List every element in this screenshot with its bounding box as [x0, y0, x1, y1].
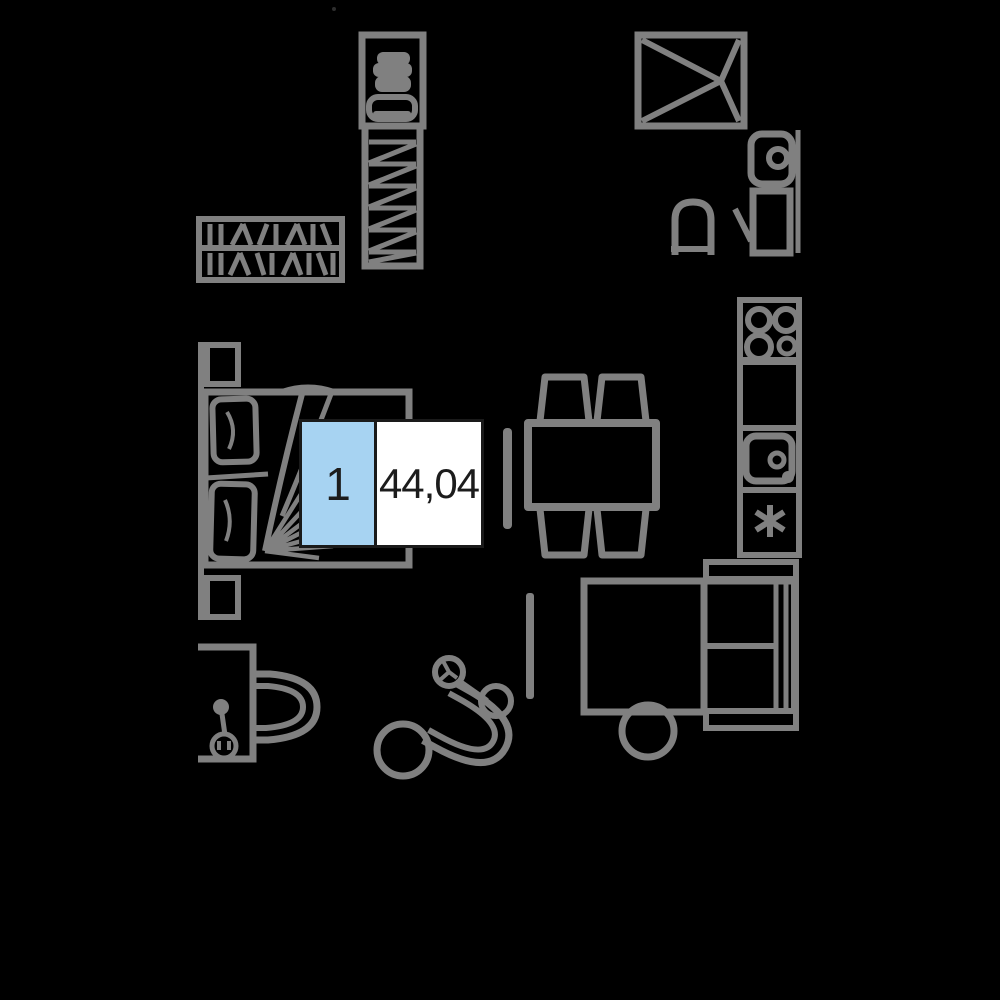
tall-wardrobe-icon — [362, 35, 423, 266]
lounge-corner-icon — [377, 658, 521, 777]
desk-with-chair-icon — [198, 647, 317, 759]
coat-stand-icon — [212, 699, 236, 758]
dining-set-icon — [528, 377, 656, 555]
kitchen-counter-icon — [740, 362, 799, 428]
unit-number-badge[interactable]: 1 — [302, 422, 377, 545]
tv-panel-icon — [503, 428, 512, 529]
freezer-cabinet-icon — [740, 490, 799, 555]
dot-artifact — [332, 7, 336, 11]
unit-number: 1 — [325, 457, 351, 511]
corner-sofa-bed-icon — [584, 562, 798, 728]
pouf-icon — [377, 724, 429, 776]
tub-armchair-icon — [423, 683, 521, 778]
floorplan-canvas — [0, 0, 1000, 1000]
toilet-icon — [671, 202, 714, 255]
unit-area-value: 44,04 — [379, 460, 479, 508]
stove-icon — [740, 300, 799, 360]
shower-cabin-icon — [638, 35, 744, 126]
hanging-rail-closet-icon — [199, 219, 342, 280]
kitchen-block-icon — [740, 300, 799, 555]
unit-area-label[interactable]: 1 44,04 — [299, 419, 484, 548]
unit-area-badge[interactable]: 44,04 — [377, 422, 481, 545]
partition-wall — [526, 593, 534, 699]
kitchen-sink-icon — [740, 428, 799, 490]
washbasin-icon — [751, 134, 799, 184]
floorplan-page: { "label": { "unit_number": "1", "area":… — [0, 0, 1000, 1000]
